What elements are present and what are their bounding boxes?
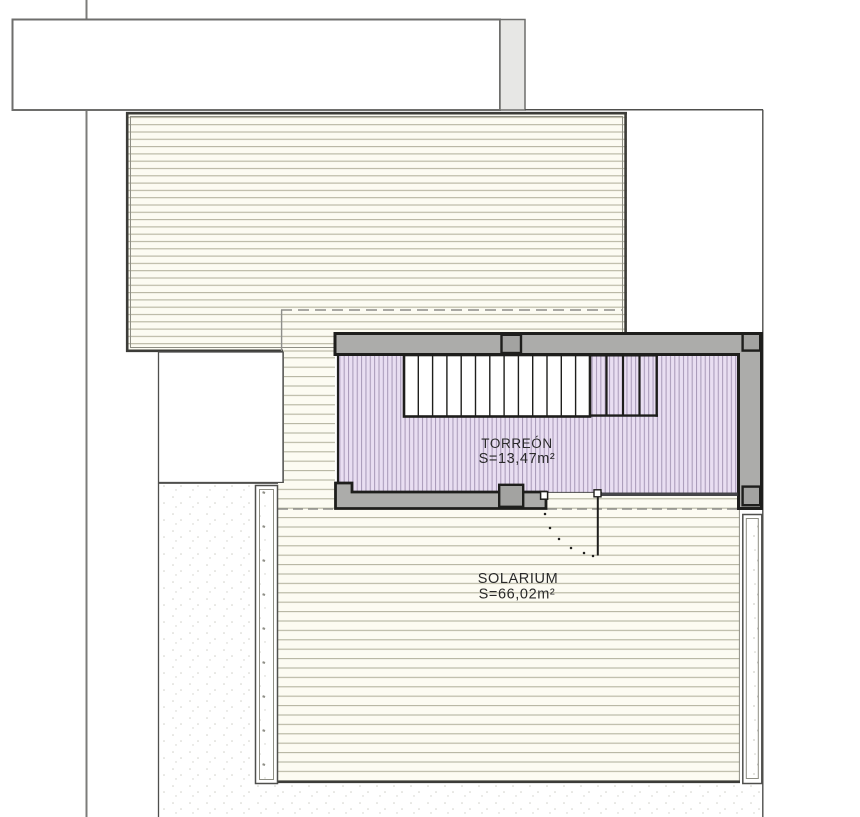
building-section-outline <box>13 20 501 111</box>
planter-left <box>256 486 278 784</box>
lower-roof-void <box>159 352 284 483</box>
torreon-label: TORREÓN <box>481 436 552 451</box>
gravel-strip-bottom <box>159 784 763 817</box>
torreon-area-label: S=13,47m² <box>479 451 556 467</box>
pillar-bottom-right <box>743 487 761 506</box>
solarium-hatch <box>278 483 740 783</box>
pillar-bottom-center <box>499 485 523 507</box>
solarium-area-label: S=66,02m² <box>479 587 556 603</box>
chimney-section <box>500 20 525 111</box>
gravel-strip-left <box>159 484 255 784</box>
pillar-top-center <box>502 335 522 353</box>
planter-right <box>743 515 762 784</box>
floor-plan-canvas: TORREÓN S=13,47m² SOLARIUM S=66,02m² <box>0 0 860 817</box>
roof-terrace <box>126 112 627 352</box>
pillar-top-right <box>743 334 761 351</box>
solarium-label: SOLARIUM <box>478 571 559 587</box>
wall-end-cap <box>541 492 548 500</box>
floor-plan-drawing: TORREÓN S=13,47m² SOLARIUM S=66,02m² <box>0 0 860 817</box>
door-hinge <box>594 490 601 497</box>
solarium <box>278 483 740 783</box>
roof-hatch <box>126 112 627 352</box>
roof-annex-column <box>283 352 335 483</box>
